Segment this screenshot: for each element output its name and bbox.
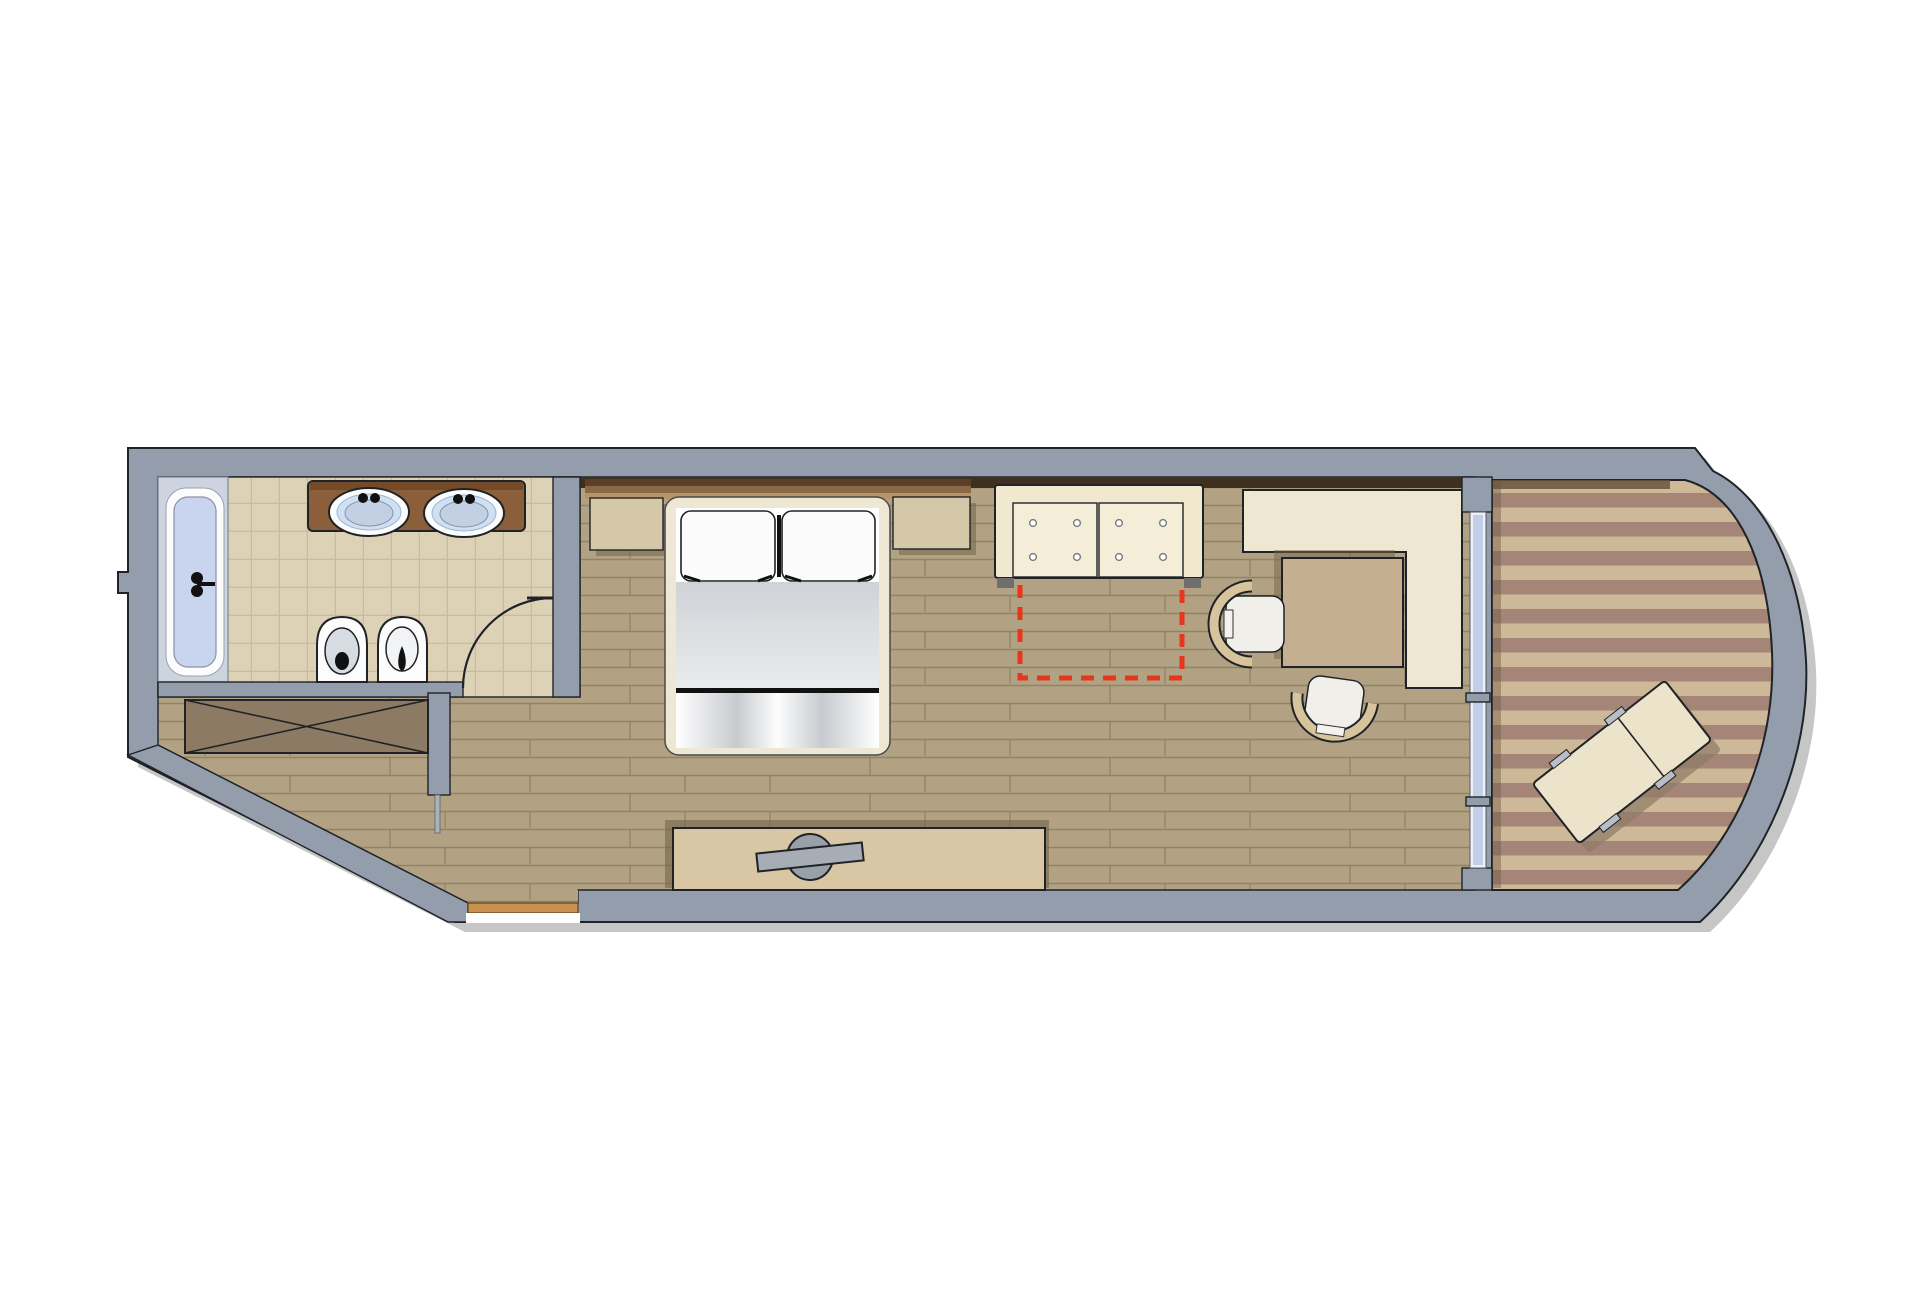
- sofa: [995, 485, 1203, 588]
- chair-tab: [1224, 610, 1233, 638]
- double-sink-vanity: [308, 481, 525, 537]
- floor-plan-page: [0, 0, 1920, 1306]
- wall-closet-stub: [428, 693, 450, 795]
- bed-duvet: [676, 693, 879, 748]
- sofa-foot: [997, 578, 1014, 588]
- window-joint: [1466, 693, 1490, 702]
- faucet-icon: [358, 493, 368, 503]
- entrance-gap-floor: [468, 890, 578, 903]
- window-joint: [1466, 797, 1490, 806]
- headboard-shelf: [585, 479, 971, 499]
- faucet-icon: [453, 494, 463, 504]
- bathtub: [166, 488, 224, 676]
- sofa-cushion-left: [1013, 503, 1097, 577]
- balcony-left-shade: [1492, 480, 1501, 888]
- built-in-wardrobe: [185, 700, 428, 753]
- nightstand-right: [893, 497, 970, 549]
- pillow-left: [681, 511, 775, 581]
- door-pivot-line: [435, 795, 440, 833]
- entrance-threshold: [468, 903, 578, 913]
- faucet-icon: [370, 493, 380, 503]
- sofa-cushion-right: [1099, 503, 1183, 577]
- balcony-top-shade: [1492, 480, 1670, 489]
- bed-sheet: [676, 582, 879, 688]
- entrance-outside: [466, 913, 580, 923]
- chair-seat: [1226, 596, 1284, 652]
- pillow-gap: [777, 515, 781, 577]
- toilet: [317, 617, 367, 682]
- bidet: [378, 617, 427, 682]
- sink-right: [424, 489, 504, 537]
- side-table: [1282, 558, 1403, 667]
- faucet-icon: [465, 494, 475, 504]
- window-glass: [1473, 515, 1483, 865]
- wall-bathroom-right: [553, 477, 580, 697]
- floor-plan-drawing: [0, 0, 1920, 1306]
- bed-fold-line: [676, 688, 879, 693]
- chair-left: [1214, 586, 1284, 662]
- sink-left: [329, 488, 409, 536]
- double-bed: [665, 497, 890, 755]
- sofa-foot: [1184, 578, 1201, 588]
- pillow-right: [782, 511, 875, 581]
- wall-bathroom-bottom: [158, 682, 463, 697]
- nightstand-left: [590, 498, 663, 550]
